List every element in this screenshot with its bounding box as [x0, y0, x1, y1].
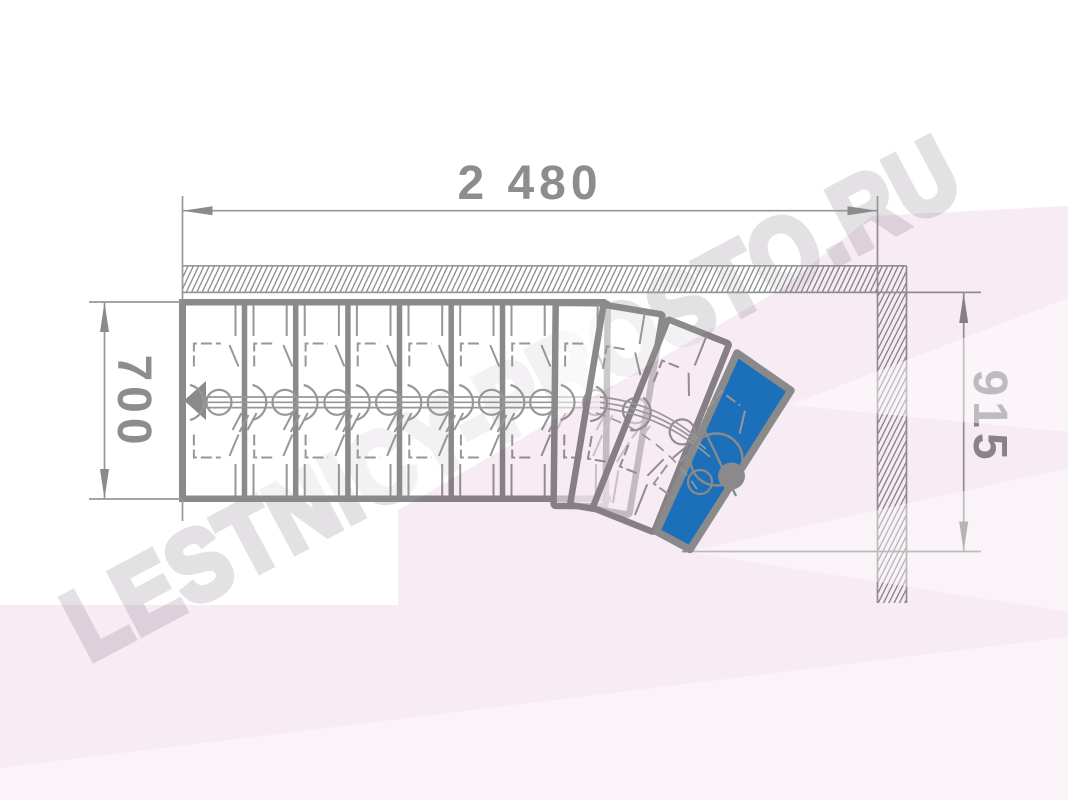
svg-text:700: 700	[107, 354, 160, 449]
svg-text:2 480: 2 480	[457, 157, 602, 210]
